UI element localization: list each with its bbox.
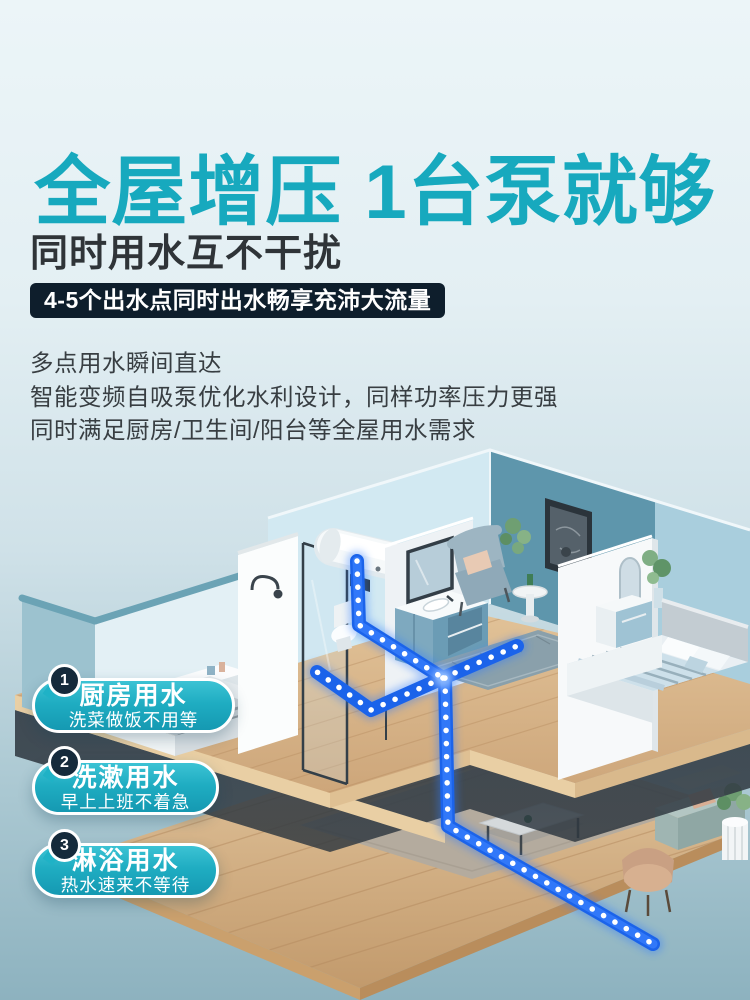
armchair	[622, 848, 674, 916]
callout-number-badge: 1	[48, 664, 81, 697]
feature-line: 多点用水瞬间直达	[30, 347, 558, 381]
feature-badge: 4-5个出水点同时出水畅享充沛大流量	[30, 283, 445, 318]
feature-description: 多点用水瞬间直达 智能变频自吸泵优化水利设计，同样功率压力更强 同时满足厨房/卫…	[30, 347, 558, 448]
callout-number-badge: 3	[48, 829, 81, 862]
callout-subtitle: 热水速来不等待	[35, 875, 216, 895]
promo-page: 全屋增压 1台泵就够 同时用水互不干扰 4-5个出水点同时出水畅享充沛大流量 多…	[0, 0, 750, 1000]
callout-subtitle: 早上上班不着急	[35, 792, 216, 812]
callout-shower: 3 淋浴用水 热水速来不等待	[32, 843, 219, 898]
page-subtitle: 同时用水互不干扰	[30, 222, 342, 277]
drum-table	[722, 817, 748, 860]
bathroom-wall	[238, 536, 298, 754]
feature-line: 智能变频自吸泵优化水利设计，同样功率压力更强	[30, 381, 558, 415]
callout-subtitle: 洗菜做饭不用等	[35, 710, 232, 730]
callout-washing: 2 洗漱用水 早上上班不着急	[32, 760, 219, 815]
callout-kitchen: 1 厨房用水 洗菜做饭不用等	[32, 678, 235, 733]
callout-number-badge: 2	[48, 746, 81, 779]
